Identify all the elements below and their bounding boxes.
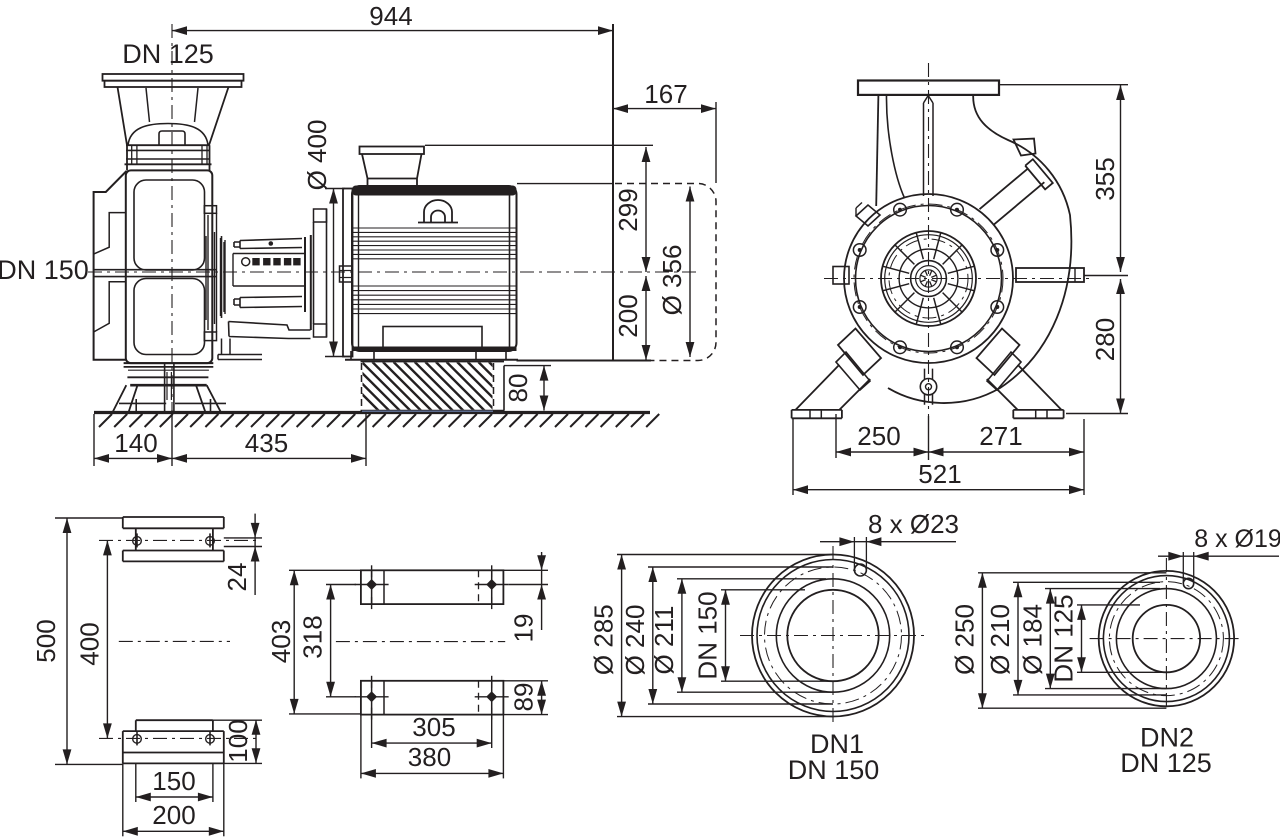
svg-text:Ø 356: Ø 356 <box>657 245 687 316</box>
svg-text:200: 200 <box>152 800 195 830</box>
svg-text:Ø 210: Ø 210 <box>985 604 1015 675</box>
svg-text:100: 100 <box>223 719 253 762</box>
svg-text:89: 89 <box>509 683 539 712</box>
svg-text:80: 80 <box>503 374 533 403</box>
svg-text:DN 125: DN 125 <box>122 39 214 69</box>
svg-text:DN 125: DN 125 <box>1120 748 1212 778</box>
svg-text:500: 500 <box>31 619 61 662</box>
svg-text:Ø 240: Ø 240 <box>620 605 650 676</box>
svg-text:Ø 211: Ø 211 <box>649 606 679 675</box>
svg-text:305: 305 <box>412 712 455 742</box>
svg-text:140: 140 <box>114 428 157 458</box>
svg-text:299: 299 <box>613 188 643 231</box>
svg-text:DN 150: DN 150 <box>0 255 89 285</box>
svg-text:944: 944 <box>369 1 412 31</box>
svg-text:8 x Ø19: 8 x Ø19 <box>1194 525 1280 553</box>
svg-text:400: 400 <box>74 622 104 665</box>
svg-text:DN 125: DN 125 <box>1049 594 1079 682</box>
svg-text:19: 19 <box>509 614 539 643</box>
svg-text:403: 403 <box>266 620 296 663</box>
svg-text:Ø 285: Ø 285 <box>589 604 619 675</box>
svg-text:150: 150 <box>152 766 195 796</box>
svg-text:Ø 184: Ø 184 <box>1017 604 1047 675</box>
svg-text:Ø 250: Ø 250 <box>949 604 979 675</box>
svg-text:521: 521 <box>918 459 961 489</box>
svg-text:271: 271 <box>979 421 1022 451</box>
svg-text:318: 318 <box>298 615 328 658</box>
svg-text:8 x Ø23: 8 x Ø23 <box>868 509 959 539</box>
svg-text:355: 355 <box>1090 157 1120 200</box>
svg-text:167: 167 <box>644 79 687 109</box>
svg-text:DN 150: DN 150 <box>788 755 880 785</box>
svg-text:250: 250 <box>857 421 900 451</box>
svg-text:435: 435 <box>245 428 288 458</box>
svg-text:280: 280 <box>1090 318 1120 361</box>
svg-text:DN 150: DN 150 <box>693 591 723 679</box>
svg-text:Ø 400: Ø 400 <box>302 120 332 191</box>
svg-text:24: 24 <box>222 563 252 592</box>
svg-text:200: 200 <box>613 294 643 337</box>
svg-text:380: 380 <box>408 742 451 772</box>
